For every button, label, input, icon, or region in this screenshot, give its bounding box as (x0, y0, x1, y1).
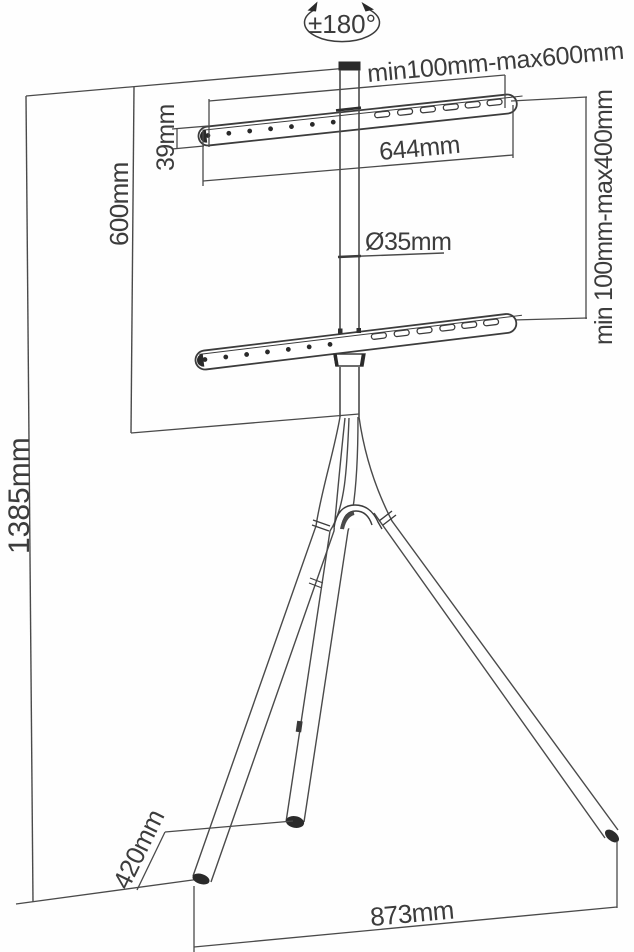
svg-text:39mm: 39mm (152, 104, 180, 171)
svg-text:Ø35mm: Ø35mm (365, 228, 451, 256)
svg-text:min 100mm-max400mm: min 100mm-max400mm (590, 90, 618, 345)
svg-text:±180°: ±180° (308, 9, 376, 39)
svg-text:600mm: 600mm (104, 162, 134, 246)
svg-text:1385mm: 1385mm (3, 437, 36, 554)
